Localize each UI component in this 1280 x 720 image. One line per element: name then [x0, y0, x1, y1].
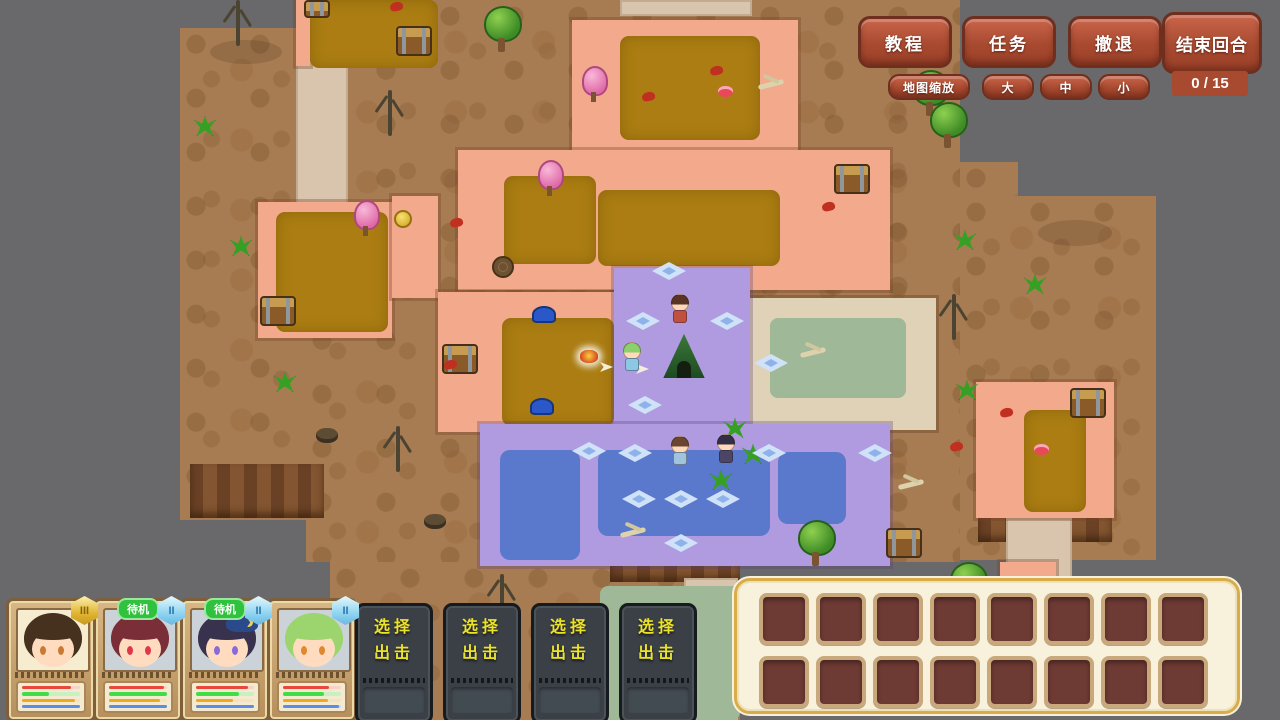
mustard-terrain	[598, 190, 780, 266]
character-sprite[interactable]	[622, 342, 640, 370]
rock-icon	[316, 428, 338, 443]
deploy-label: 选择	[534, 615, 606, 641]
gold-icon	[394, 210, 412, 228]
zoom-medium-button[interactable]: 中	[1040, 74, 1092, 100]
standby-badge: 待机	[117, 598, 159, 620]
end-turn-button[interactable]: 结束回合	[1162, 12, 1262, 74]
card-divider	[451, 678, 513, 683]
character-sprite[interactable]	[716, 434, 734, 462]
inventory-slot[interactable]	[1044, 656, 1094, 708]
card-divider	[102, 672, 174, 678]
inventory-slot[interactable]	[1158, 656, 1208, 708]
empty-slot	[539, 687, 601, 713]
sage-terrain	[770, 318, 906, 398]
chest-icon[interactable]	[886, 528, 922, 558]
quest-button[interactable]: 任务	[962, 16, 1056, 68]
pinktree-icon	[538, 160, 560, 196]
cake-icon	[718, 86, 733, 97]
retreat-button[interactable]: 撤退	[1068, 16, 1162, 68]
tan-terrain	[296, 60, 348, 208]
empty-slot	[363, 687, 425, 713]
inventory-slot[interactable]	[987, 593, 1037, 645]
salmon-terrain	[1000, 562, 1056, 578]
zoom-large-button[interactable]: 大	[982, 74, 1034, 100]
chest-icon[interactable]	[260, 296, 296, 326]
stat-bars	[190, 681, 260, 713]
blueitem-icon	[530, 398, 554, 415]
shadow-icon	[1038, 220, 1112, 246]
chest-icon[interactable]	[1070, 388, 1106, 418]
chest-icon[interactable]	[834, 164, 870, 194]
inventory-slot[interactable]	[1044, 593, 1094, 645]
inventory-slot[interactable]	[816, 593, 866, 645]
tree-icon	[798, 520, 832, 566]
card-divider	[276, 672, 348, 678]
stump-icon	[492, 256, 514, 278]
tutorial-button[interactable]: 教程	[858, 16, 952, 68]
deploy-label: 选择	[358, 615, 430, 641]
pinktree-icon	[354, 200, 376, 236]
mustard-terrain	[502, 318, 614, 426]
inventory-slot[interactable]	[930, 656, 980, 708]
deploy-label: 选择	[622, 615, 694, 641]
stat-bars	[277, 681, 347, 713]
inventory-slot[interactable]	[930, 593, 980, 645]
rock-icon	[424, 514, 446, 529]
map-zoom-label: 地图缩放	[888, 74, 970, 100]
inventory-slot[interactable]	[873, 656, 923, 708]
turn-counter: 0 / 15	[1172, 71, 1248, 96]
standby-badge: 待机	[204, 598, 246, 620]
inventory-panel	[734, 578, 1240, 714]
deploy-label: 选择	[446, 615, 518, 641]
camp-icon	[580, 350, 598, 363]
dead-icon	[952, 294, 956, 340]
game-screen: 教程 任务 撤退 结束回合 0 / 15 地图缩放 大 中 小 III 待机 I…	[0, 0, 1280, 720]
tree-icon	[484, 6, 518, 52]
card-divider	[627, 678, 689, 683]
inventory-slot[interactable]	[759, 656, 809, 708]
party-card-1[interactable]: III	[6, 598, 96, 720]
mustard-terrain	[620, 36, 760, 140]
dead-icon	[236, 0, 240, 46]
party-card-2[interactable]: 待机 II	[93, 598, 183, 720]
cake-icon	[1034, 444, 1049, 455]
stat-bars	[16, 681, 86, 713]
blue-terrain	[500, 450, 580, 560]
empty-slot	[451, 687, 513, 713]
empty-slot	[627, 687, 689, 713]
inventory-slot[interactable]	[873, 593, 923, 645]
blue-terrain	[778, 452, 846, 524]
deploy-button-3[interactable]: 选择出击	[531, 603, 609, 720]
deploy-button-1[interactable]: 选择出击	[355, 603, 433, 720]
stat-bars	[103, 681, 173, 713]
shadow-icon	[210, 40, 282, 64]
dead-icon	[396, 426, 400, 472]
zoom-small-button[interactable]: 小	[1098, 74, 1150, 100]
pinktree-icon	[582, 66, 604, 102]
inventory-slot[interactable]	[1158, 593, 1208, 645]
dead-icon	[388, 90, 392, 136]
party-card-4[interactable]: II	[267, 598, 357, 720]
inventory-slot[interactable]	[816, 656, 866, 708]
character-sprite[interactable]	[670, 436, 688, 464]
inventory-slot[interactable]	[1101, 593, 1151, 645]
card-divider	[363, 678, 425, 683]
card-divider	[15, 672, 87, 678]
chest-icon[interactable]	[396, 26, 432, 56]
inventory-slot[interactable]	[1101, 656, 1151, 708]
deploy-button-4[interactable]: 选择出击	[619, 603, 697, 720]
tan-terrain	[620, 0, 752, 16]
card-divider	[539, 678, 601, 683]
chest-icon[interactable]	[304, 0, 330, 18]
card-divider	[189, 672, 261, 678]
cliff-terrain	[190, 464, 324, 518]
inventory-slot[interactable]	[759, 593, 809, 645]
tree-icon	[930, 102, 964, 148]
deploy-button-2[interactable]: 选择出击	[443, 603, 521, 720]
party-card-3[interactable]: 待机 II	[180, 598, 270, 720]
blueitem-icon	[532, 306, 556, 323]
inventory-slot[interactable]	[987, 656, 1037, 708]
mustard-terrain	[1024, 410, 1086, 512]
brown-terrain	[960, 162, 1018, 198]
character-sprite[interactable]	[670, 294, 688, 322]
